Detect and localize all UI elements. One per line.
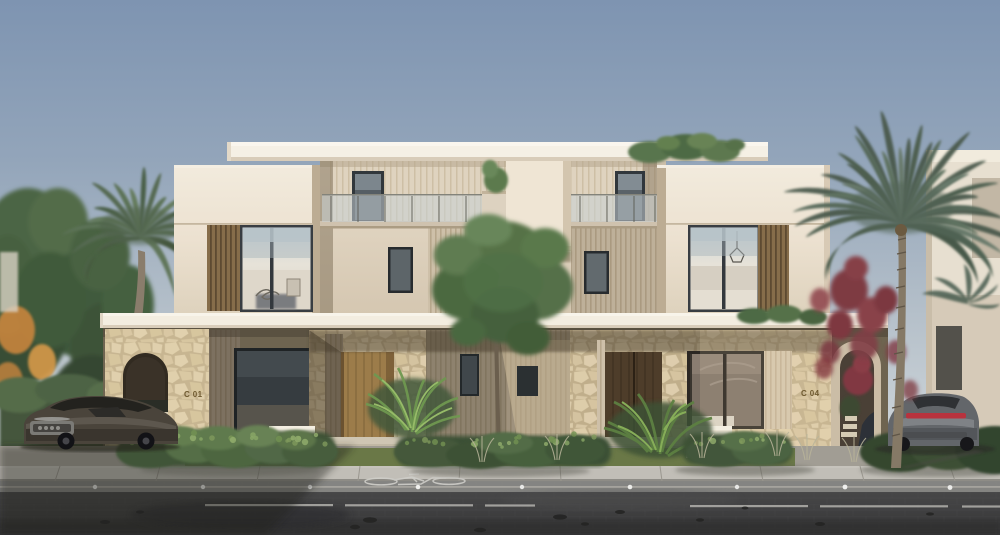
svg-text:C 04: C 04: [801, 389, 820, 398]
svg-text:C 01: C 01: [184, 390, 203, 399]
